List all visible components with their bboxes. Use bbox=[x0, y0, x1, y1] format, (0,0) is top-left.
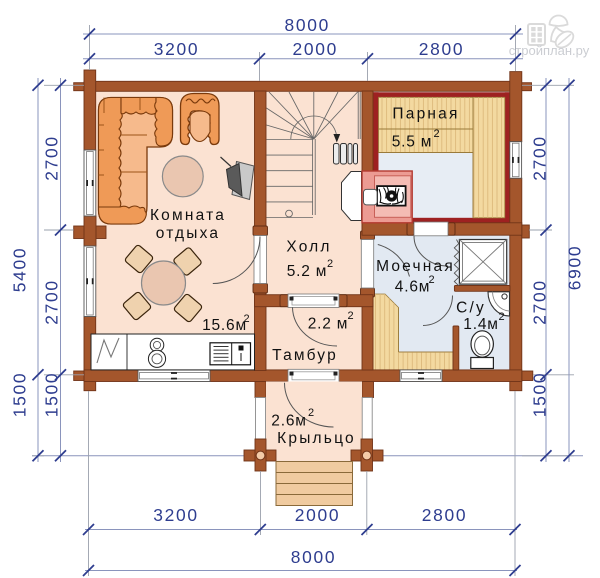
svg-text:2.6м: 2.6м bbox=[271, 413, 306, 430]
svg-text:1500: 1500 bbox=[10, 372, 30, 418]
svg-text:5.5 м: 5.5 м bbox=[392, 134, 433, 151]
svg-text:2: 2 bbox=[498, 311, 504, 323]
svg-text:8000: 8000 bbox=[285, 15, 331, 35]
svg-text:15.6м: 15.6м bbox=[202, 317, 247, 334]
svg-text:2: 2 bbox=[347, 310, 353, 322]
svg-text:2.2 м: 2.2 м bbox=[308, 316, 349, 333]
svg-text:3200: 3200 bbox=[154, 39, 200, 59]
svg-text:1500: 1500 bbox=[41, 372, 61, 418]
svg-text:2700: 2700 bbox=[530, 279, 550, 325]
svg-text:Крыльцо: Крыльцо bbox=[277, 430, 356, 447]
svg-text:Парная: Парная bbox=[392, 106, 459, 123]
svg-text:1500: 1500 bbox=[530, 372, 550, 418]
svg-text:2700: 2700 bbox=[41, 279, 61, 325]
svg-text:1.4м: 1.4м bbox=[463, 316, 498, 333]
svg-text:стройплан.ру: стройплан.ру bbox=[509, 43, 590, 58]
svg-text:2: 2 bbox=[308, 407, 314, 419]
svg-text:5400: 5400 bbox=[10, 247, 30, 293]
svg-text:Комната: Комната bbox=[150, 207, 226, 224]
svg-text:3200: 3200 bbox=[153, 505, 199, 525]
svg-text:5.2 м: 5.2 м bbox=[287, 263, 328, 280]
svg-text:2: 2 bbox=[428, 274, 434, 286]
svg-text:отдыха: отдыха bbox=[156, 225, 220, 242]
svg-text:2: 2 bbox=[243, 313, 249, 325]
svg-text:2000: 2000 bbox=[295, 505, 341, 525]
svg-text:4.6м: 4.6м bbox=[395, 279, 430, 296]
svg-text:С/у: С/у bbox=[456, 300, 486, 317]
svg-text:Холл: Холл bbox=[286, 239, 331, 256]
svg-text:6900: 6900 bbox=[565, 245, 585, 291]
svg-text:2000: 2000 bbox=[293, 39, 339, 59]
svg-text:Моечная: Моечная bbox=[376, 258, 455, 275]
svg-text:8000: 8000 bbox=[291, 547, 337, 567]
svg-text:Тамбур: Тамбур bbox=[272, 347, 338, 364]
svg-text:2800: 2800 bbox=[422, 505, 468, 525]
svg-text:2: 2 bbox=[433, 128, 439, 140]
svg-text:2800: 2800 bbox=[419, 39, 465, 59]
svg-text:2700: 2700 bbox=[530, 135, 550, 181]
svg-text:2: 2 bbox=[327, 258, 333, 270]
svg-text:2700: 2700 bbox=[41, 135, 61, 181]
